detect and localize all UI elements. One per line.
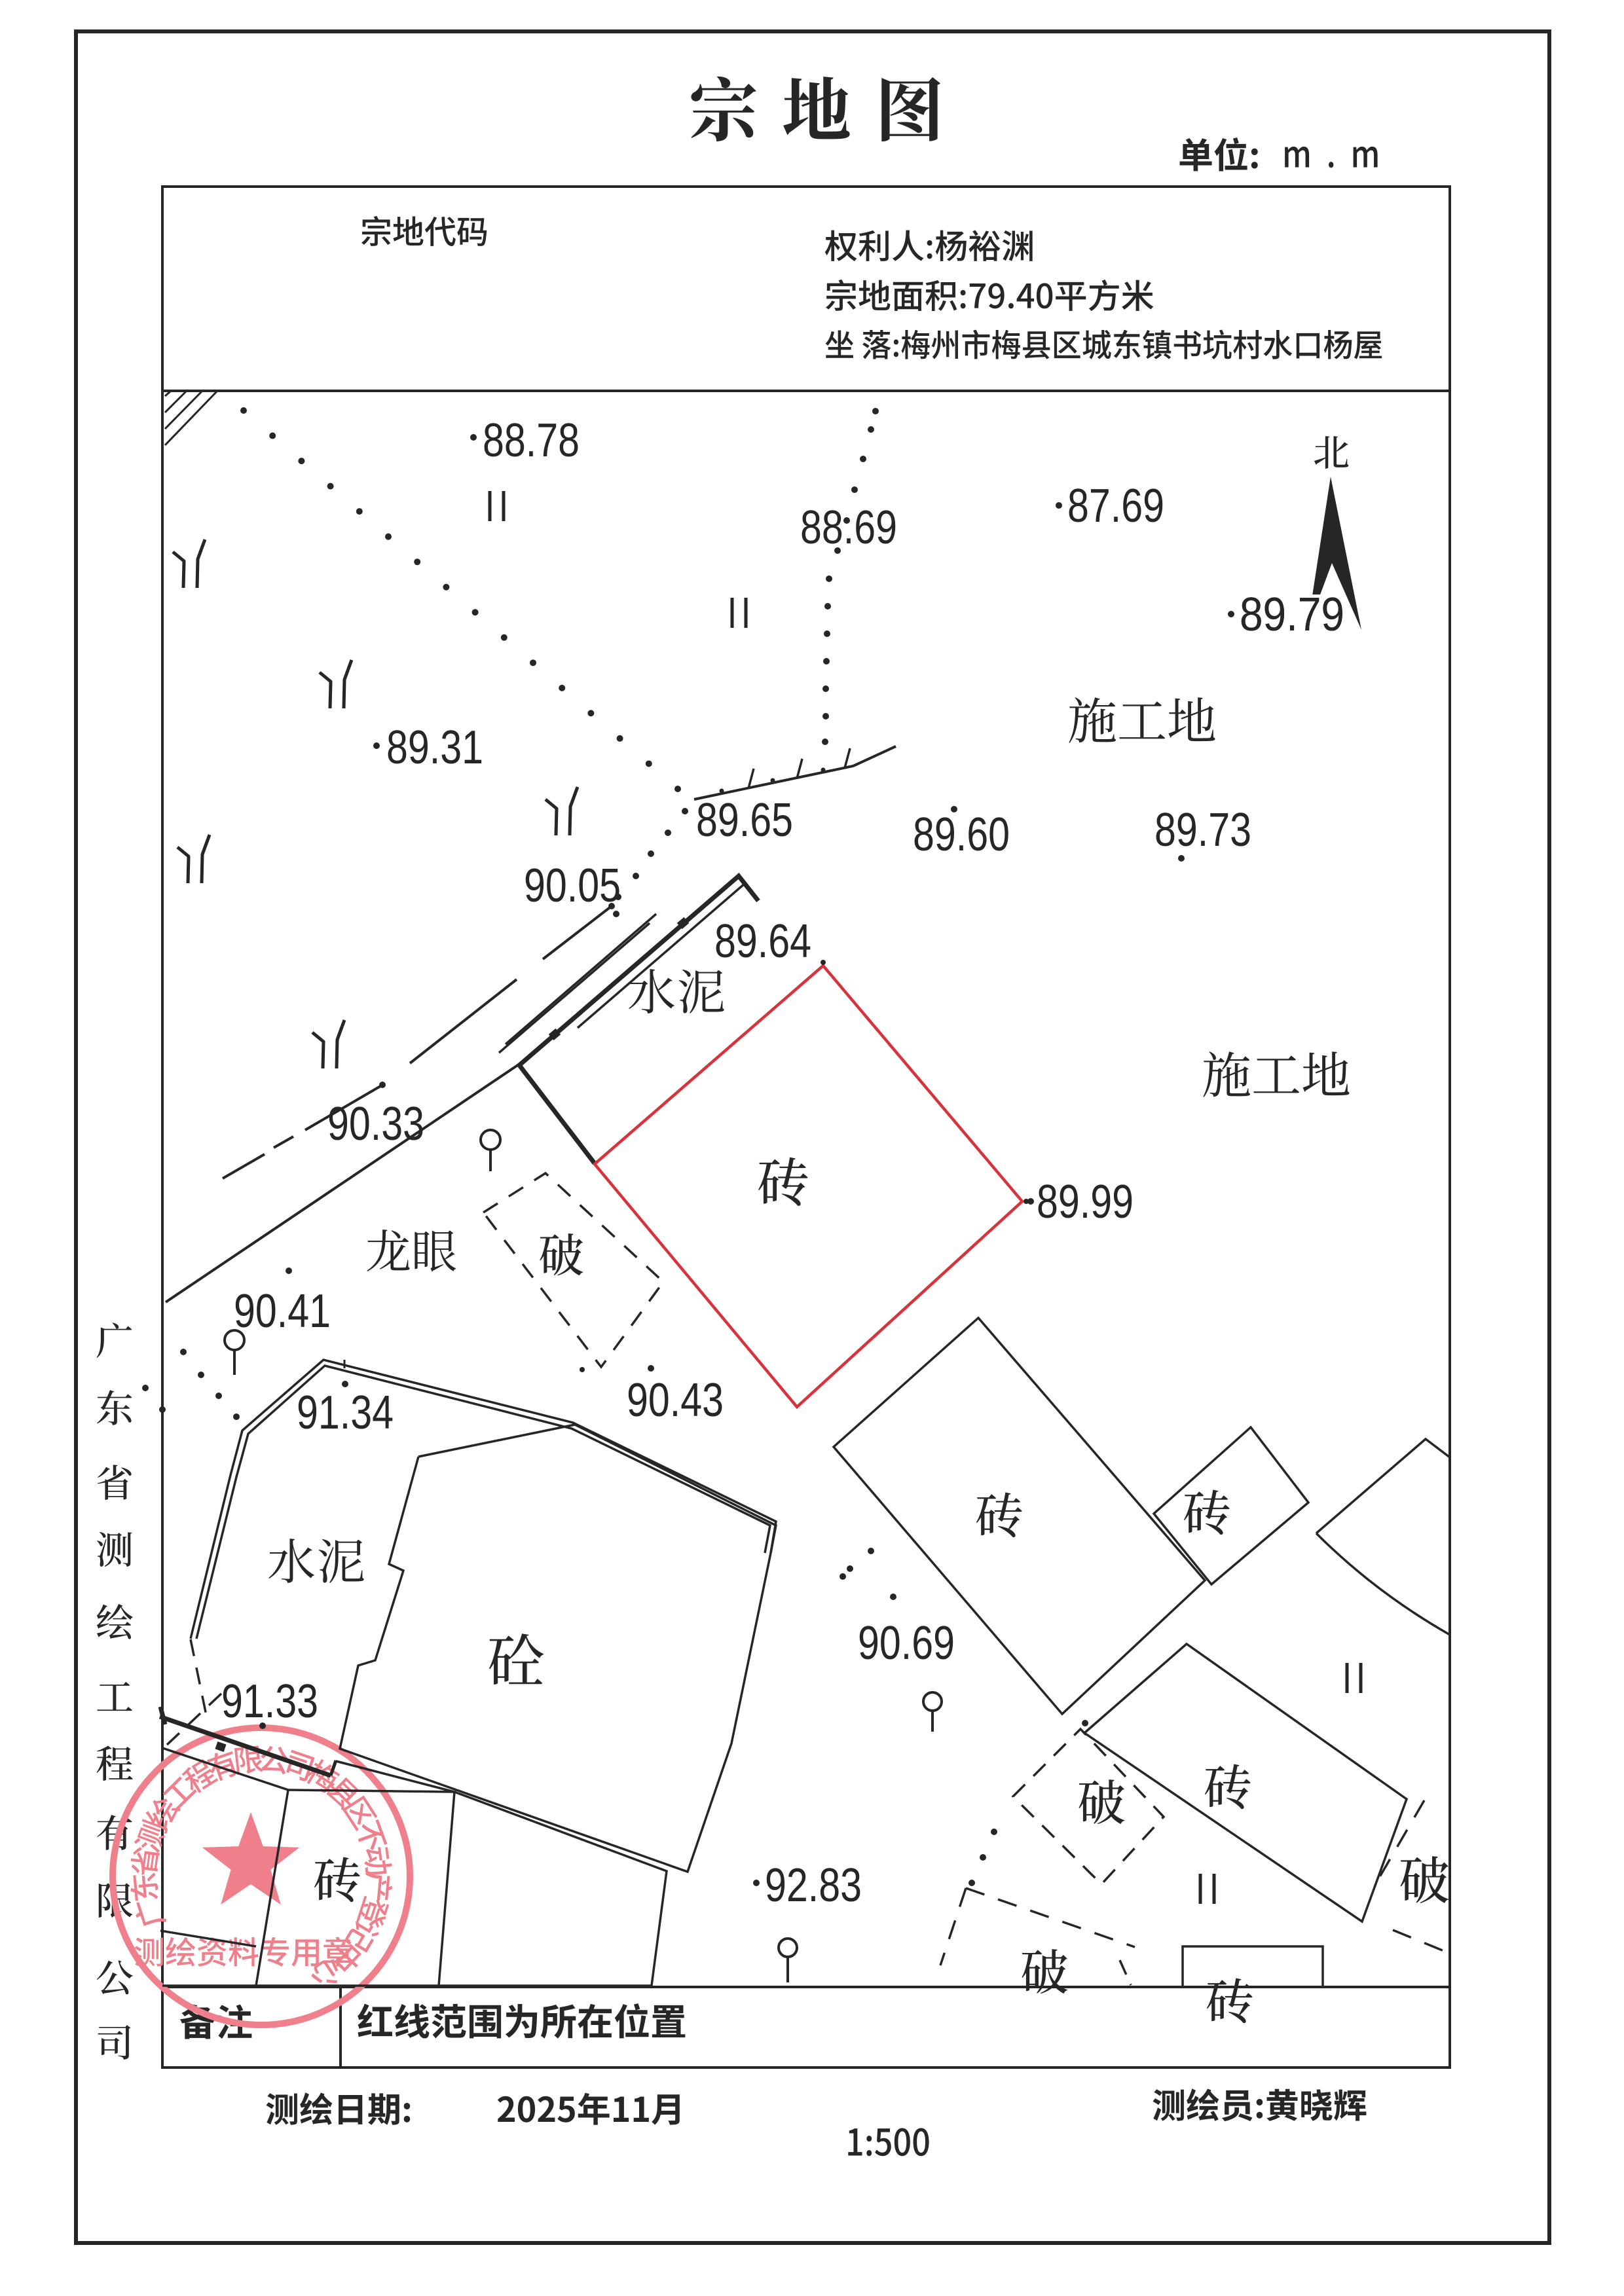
svg-text:87.69: 87.69 bbox=[1067, 480, 1164, 532]
svg-text:89.65: 89.65 bbox=[696, 794, 793, 847]
svg-text:90.43: 90.43 bbox=[627, 1374, 724, 1427]
svg-text:89.31: 89.31 bbox=[386, 721, 483, 774]
svg-text:89.73: 89.73 bbox=[1154, 804, 1251, 856]
svg-text:88.78: 88.78 bbox=[483, 414, 580, 467]
svg-text:90.05: 90.05 bbox=[524, 860, 621, 912]
svg-text:90.41: 90.41 bbox=[234, 1285, 331, 1338]
svg-text:89.64: 89.64 bbox=[714, 915, 811, 968]
svg-text:91.33: 91.33 bbox=[221, 1675, 318, 1728]
svg-text:90.69: 90.69 bbox=[858, 1617, 955, 1669]
svg-text:89.99: 89.99 bbox=[1037, 1176, 1134, 1228]
svg-text:90.33: 90.33 bbox=[327, 1098, 424, 1150]
svg-text:89.60: 89.60 bbox=[913, 809, 1010, 861]
svg-text:91.34: 91.34 bbox=[297, 1387, 394, 1439]
svg-text:88.69: 88.69 bbox=[800, 501, 897, 554]
svg-text:92.83: 92.83 bbox=[765, 1859, 862, 1912]
svg-text:89.79: 89.79 bbox=[1240, 589, 1344, 641]
